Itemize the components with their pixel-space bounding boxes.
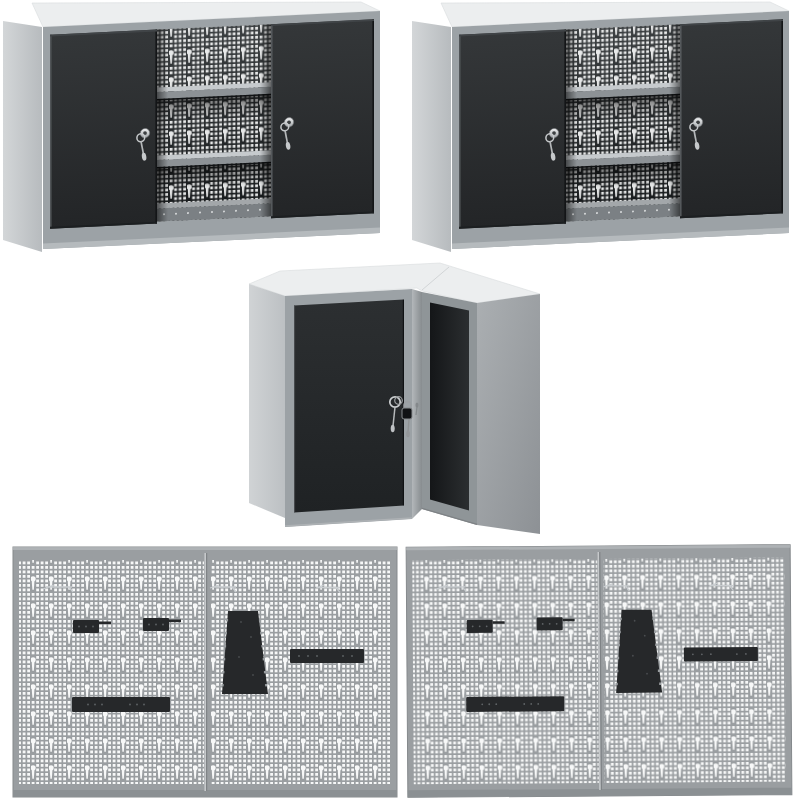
product-wall-cabinet-left	[3, 2, 380, 252]
product-render	[0, 0, 800, 800]
product-pegboard-right	[406, 545, 792, 798]
product-corner-cabinet	[249, 263, 540, 534]
product-pegboard-left	[13, 547, 397, 797]
product-wall-cabinet-right	[412, 2, 789, 252]
product-image	[0, 0, 800, 800]
